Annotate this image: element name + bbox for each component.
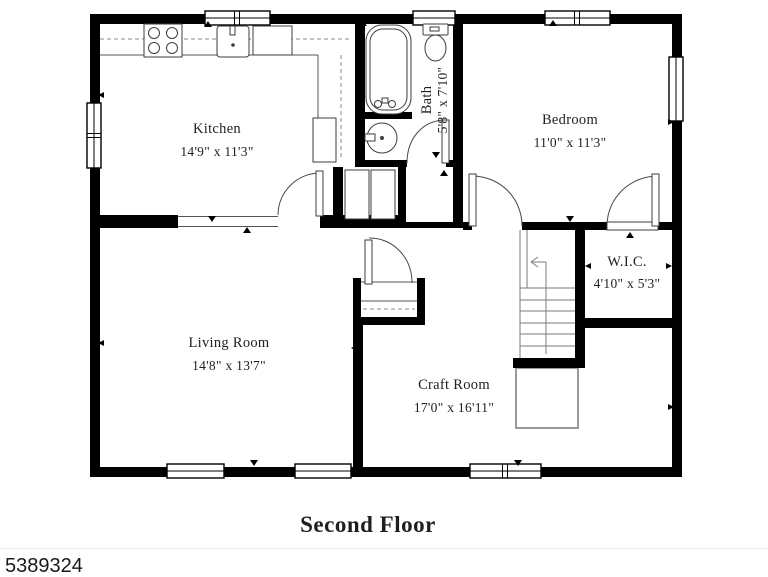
floor-plan-canvas: Kitchen 14'9" x 11'3" Bath 5'8" x 7'10" … xyxy=(0,0,768,577)
window-craft-bottom xyxy=(470,464,541,478)
floor-title: Second Floor xyxy=(300,512,436,537)
kitchen-sink-icon xyxy=(217,26,249,57)
toilet-icon xyxy=(423,24,448,61)
under-stair-storage xyxy=(516,368,578,428)
footer-divider xyxy=(0,548,768,549)
living-room-dims: 14'8" x 13'7" xyxy=(192,358,266,373)
bath-label: Bath xyxy=(419,85,435,114)
bedroom-label: Bedroom xyxy=(542,112,598,128)
bedroom-dims: 11'0" x 11'3" xyxy=(534,135,607,150)
wall-left xyxy=(90,14,100,477)
wic-dims: 4'10" x 5'3" xyxy=(594,276,661,291)
kitchen-dims: 14'9" x 11'3" xyxy=(180,144,253,159)
window-bath-top xyxy=(413,11,455,25)
living-room-label: Living Room xyxy=(188,335,269,351)
craft-room-dims: 17'0" x 16'11" xyxy=(414,400,494,415)
craft-room-label: Craft Room xyxy=(418,377,490,393)
window-kitchen-top xyxy=(205,11,270,25)
window-bedroom-right xyxy=(669,57,683,121)
kitchen-label: Kitchen xyxy=(193,121,241,137)
floor-plan-page: Kitchen 14'9" x 11'3" Bath 5'8" x 7'10" … xyxy=(0,0,768,577)
listing-number-watermark: 5389324 xyxy=(5,555,83,577)
window-living-bottom-1 xyxy=(167,464,224,478)
kitchen-appliance-icon xyxy=(313,118,336,162)
refrigerator-icon xyxy=(253,26,292,55)
window-living-bottom-2 xyxy=(295,464,351,478)
bathtub-icon xyxy=(366,25,411,114)
bath-dims: 5'8" x 7'10" xyxy=(435,67,450,134)
wic-label: W.I.C. xyxy=(607,254,647,270)
stove-icon xyxy=(144,24,182,57)
window-kitchen-left xyxy=(87,103,101,168)
